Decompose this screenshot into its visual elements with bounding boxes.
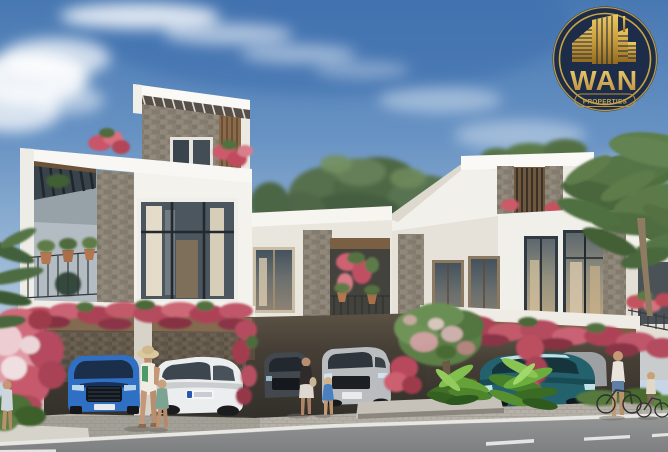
svg-text:WAN: WAN <box>570 65 638 96</box>
svg-text:PROPERTIES: PROPERTIES <box>583 98 628 105</box>
